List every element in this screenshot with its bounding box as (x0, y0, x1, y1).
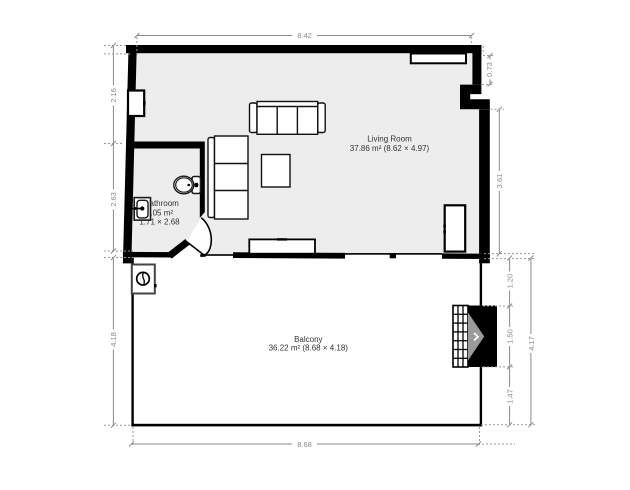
svg-text:1.20: 1.20 (506, 274, 515, 289)
svg-text:8.42: 8.42 (297, 31, 312, 40)
svg-text:Living Room: Living Room (367, 135, 412, 144)
svg-text:4.17: 4.17 (527, 336, 536, 351)
svg-text:2.63: 2.63 (109, 192, 118, 207)
svg-text:1.50: 1.50 (506, 329, 515, 344)
svg-text:2.16: 2.16 (109, 88, 118, 103)
svg-text:4.18: 4.18 (109, 332, 118, 347)
svg-text:37.86 m² (8.62 × 4.97): 37.86 m² (8.62 × 4.97) (350, 144, 430, 153)
svg-text:0.73: 0.73 (485, 62, 494, 77)
svg-text:8.68: 8.68 (297, 440, 312, 449)
svg-text:3.61: 3.61 (495, 174, 504, 189)
svg-text:36.22 m² (8.68 × 4.18): 36.22 m² (8.68 × 4.18) (269, 343, 349, 352)
svg-text:1.47: 1.47 (506, 389, 515, 404)
